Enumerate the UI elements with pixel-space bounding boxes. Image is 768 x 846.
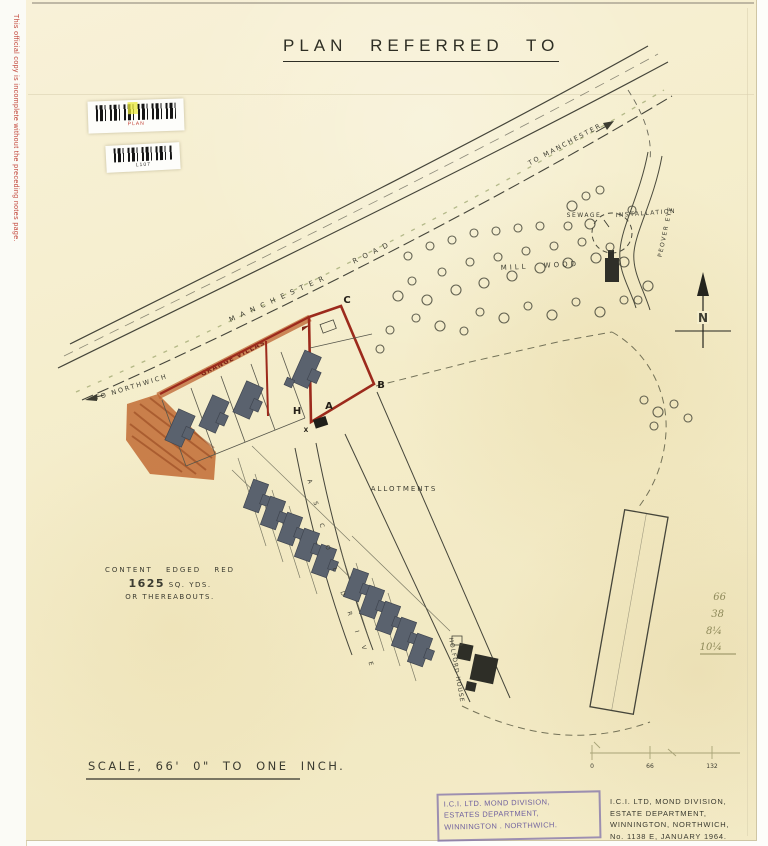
title-block-line4: No. 1138 E, JANUARY 1964.	[610, 831, 766, 843]
title-block-line2: ESTATE DEPARTMENT,	[610, 808, 766, 820]
page-title: PLAN REFERRED TO	[283, 36, 559, 62]
barcode-sticker-1: PLAN	[87, 98, 184, 133]
stamp-line3: WINNINGTON . NORTHWICH.	[444, 818, 594, 832]
title-block-line1: I.C.I. LTD, MOND DIVISION,	[610, 796, 766, 808]
sheet-top-edge	[32, 2, 754, 4]
scanned-plan-page: This official copy is incomplete without…	[0, 0, 768, 846]
fold-crease-vertical	[747, 8, 748, 836]
fold-crease-horizontal	[28, 94, 754, 95]
drawing-title-block: I.C.I. LTD, MOND DIVISION, ESTATE DEPART…	[610, 796, 766, 843]
official-copy-note: This official copy is incomplete without…	[5, 14, 19, 344]
ici-rubber-stamp: I.C.I. LTD. MOND DIVISION, ESTATES DEPAR…	[437, 790, 602, 841]
barcode-sticker-2: L107	[105, 142, 180, 173]
title-block-line3: WINNINGTON, NORTHWICH,	[610, 819, 766, 831]
barcode-1-highlight	[128, 102, 138, 114]
left-margin: This official copy is incomplete without…	[0, 0, 27, 846]
